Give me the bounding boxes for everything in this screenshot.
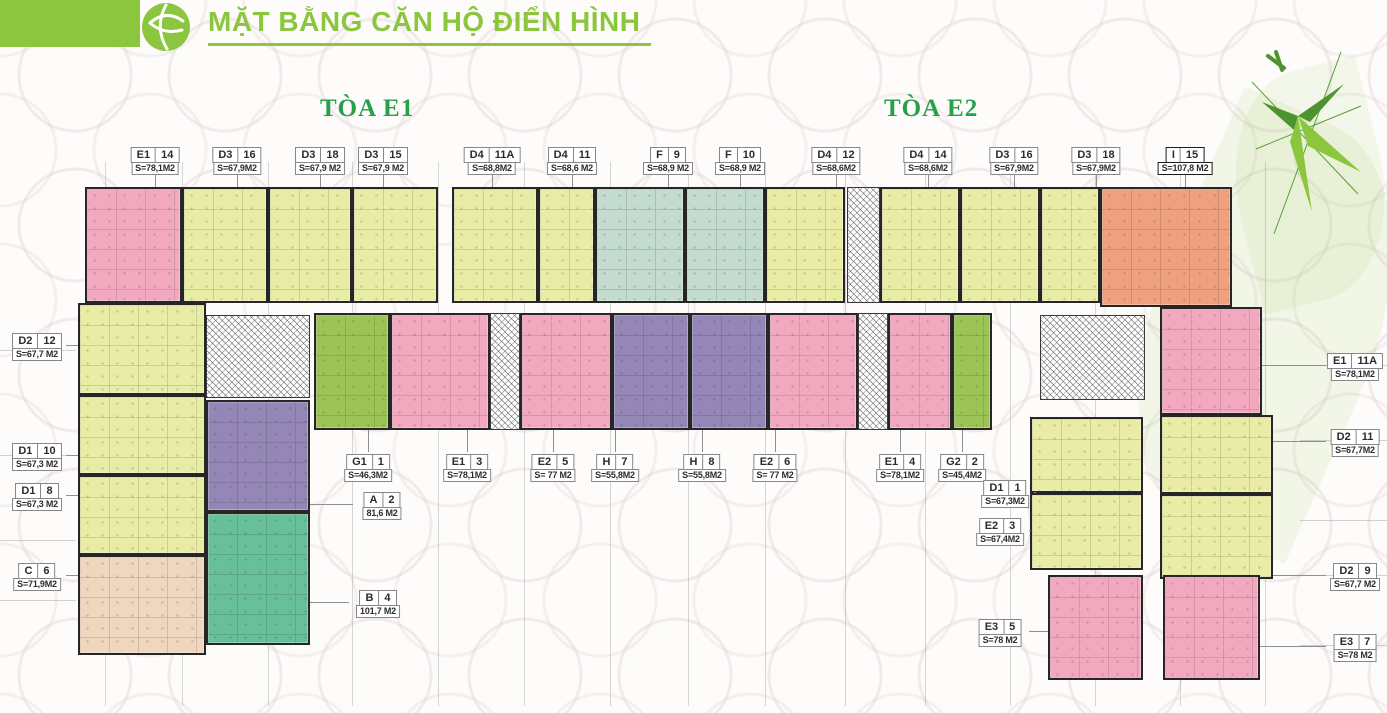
unit-number: 1 <box>1008 481 1025 495</box>
unit-code: E2 <box>533 455 556 469</box>
unit-label-B-4: B4101,7 M2 <box>356 588 400 618</box>
unit-code: I <box>1167 148 1180 162</box>
unit-block-D3-16 <box>182 187 268 303</box>
unit-code: E2 <box>755 455 778 469</box>
unit-code: D4 <box>812 148 836 162</box>
elevator-core-e1 <box>206 315 310 398</box>
unit-block-D2-9 <box>1160 494 1273 579</box>
unit-code: C <box>19 564 37 578</box>
leader-line <box>962 430 963 452</box>
unit-label-D3-16: D316S=67,9M2 <box>212 145 261 175</box>
leader-line <box>492 174 493 187</box>
leader-line <box>310 602 349 603</box>
unit-area: S=68,6M2 <box>904 162 952 175</box>
unit-code: D2 <box>1332 430 1356 444</box>
unit-block-E1-11A <box>1160 307 1262 415</box>
unit-block-D3-15 <box>352 187 438 303</box>
unit-block-E2-6 <box>768 313 858 430</box>
unit-label-D3-15: D315S=67,9 M2 <box>358 145 408 175</box>
unit-number: 6 <box>37 564 54 578</box>
unit-area: S=68,6M2 <box>812 162 860 175</box>
unit-area: S=71,9M2 <box>13 578 61 591</box>
leader-line <box>668 174 669 187</box>
unit-code: D1 <box>984 481 1008 495</box>
unit-area: S=78 M2 <box>1334 649 1377 662</box>
leader-line <box>740 174 741 187</box>
leader-line <box>775 430 776 452</box>
unit-label-C-6: C6S=71,9M2 <box>13 561 61 591</box>
unit-area: S=78,1M2 <box>1331 368 1379 381</box>
unit-code: D3 <box>213 148 237 162</box>
unit-label-E1-4: E14S=78,1M2 <box>876 452 924 482</box>
unit-code: D3 <box>296 148 320 162</box>
unit-area: S=107,8 M2 <box>1158 162 1213 175</box>
unit-block-C-6 <box>78 555 206 655</box>
leader-line <box>320 174 321 187</box>
unit-label-I-15: I15S=107,8 M2 <box>1158 145 1213 175</box>
unit-number: 3 <box>1003 519 1020 533</box>
unit-number: 12 <box>836 148 859 162</box>
leader-line <box>1029 631 1048 632</box>
unit-label-D1-1: D11S=67,3M2 <box>981 478 1029 508</box>
unit-area: S=45,4M2 <box>938 469 986 482</box>
unit-block-D1-1 <box>1030 417 1143 493</box>
unit-block-D4-11 <box>538 187 595 303</box>
leader-line <box>1260 646 1326 647</box>
unit-block-I-15 <box>1100 187 1232 307</box>
unit-area: S=68,9 M2 <box>643 162 693 175</box>
unit-area: S=67,4M2 <box>976 533 1024 546</box>
unit-area: S=68,9 M2 <box>715 162 765 175</box>
unit-number: 18 <box>1096 148 1119 162</box>
unit-number: 5 <box>556 455 573 469</box>
leader-line <box>1096 174 1097 187</box>
leader-line <box>1273 575 1326 576</box>
unit-block-G1-1 <box>314 313 390 430</box>
unit-label-D3-18: D318S=67,9 M2 <box>295 145 345 175</box>
unit-code: E2 <box>980 519 1003 533</box>
unit-code: A <box>364 493 382 507</box>
unit-block-E2-5 <box>520 313 612 430</box>
unit-label-F-10: F10S=68,9 M2 <box>715 145 765 175</box>
unit-number: 16 <box>1014 148 1037 162</box>
unit-block-D2-11 <box>1160 415 1273 494</box>
unit-number: 16 <box>237 148 260 162</box>
unit-label-D3-18: D318S=67,9M2 <box>1071 145 1120 175</box>
unit-code: D4 <box>549 148 573 162</box>
unit-area: S= 77 M2 <box>530 469 575 482</box>
unit-code: D1 <box>13 444 37 458</box>
unit-label-G2-2: G22S=45,4M2 <box>938 452 986 482</box>
grid-line <box>438 162 439 706</box>
unit-block-D3-18 <box>1040 187 1100 303</box>
unit-block-E1-4 <box>888 313 952 430</box>
leader-line <box>702 430 703 452</box>
unit-number: 10 <box>37 444 60 458</box>
unit-area: S=67,9M2 <box>1072 162 1120 175</box>
unit-code: E3 <box>980 620 1003 634</box>
unit-number: 12 <box>37 334 60 348</box>
corridor-hatch-left <box>490 313 520 430</box>
unit-number: 1 <box>372 455 389 469</box>
leader-line <box>928 174 929 187</box>
unit-code: D3 <box>359 148 383 162</box>
unit-block-B-4 <box>206 512 310 645</box>
unit-label-E2-3: E23S=67,4M2 <box>976 516 1024 546</box>
unit-label-D2-9: D29S=67,7 M2 <box>1330 561 1380 591</box>
leader-line <box>237 174 238 187</box>
leader-line <box>1262 365 1326 366</box>
unit-number: 14 <box>155 148 178 162</box>
unit-code: D4 <box>904 148 928 162</box>
unit-number: 2 <box>382 493 399 507</box>
unit-number: 11 <box>573 148 596 162</box>
unit-code: E1 <box>132 148 155 162</box>
unit-label-E3-5: E35S=78 M2 <box>979 617 1022 647</box>
elevator-core-e2 <box>1040 315 1145 400</box>
unit-label-H-7: H7S=55,8M2 <box>591 452 639 482</box>
unit-label-D4-14: D414S=68,6M2 <box>903 145 952 175</box>
leader-line <box>155 174 156 187</box>
unit-label-H-8: H8S=55,8M2 <box>678 452 726 482</box>
unit-number: 8 <box>702 455 719 469</box>
unit-code: H <box>684 455 702 469</box>
unit-area: S=67,3M2 <box>981 495 1029 508</box>
unit-code: E1 <box>880 455 903 469</box>
unit-label-E2-5: E25S= 77 M2 <box>530 452 575 482</box>
unit-label-D2-11: D211S=67,7M2 <box>1331 427 1380 457</box>
unit-block-D4-11A <box>452 187 538 303</box>
unit-number: 11A <box>489 148 520 162</box>
leader-line <box>66 345 78 346</box>
grid-line <box>0 600 76 601</box>
leader-line <box>836 174 837 187</box>
leader-line <box>1014 174 1015 187</box>
unit-area: S=67,7M2 <box>1331 444 1379 457</box>
leader-line <box>66 575 78 576</box>
unit-area: S=68,6 M2 <box>547 162 597 175</box>
leader-line <box>553 430 554 452</box>
unit-number: 11 <box>1356 430 1379 444</box>
leader-line <box>615 430 616 452</box>
tower-gap-hatch <box>847 187 880 303</box>
unit-area: S=78 M2 <box>979 634 1022 647</box>
leader-line <box>572 174 573 187</box>
unit-code: E1 <box>447 455 470 469</box>
unit-block-D1-8 <box>78 475 206 555</box>
corridor-hatch-right <box>858 313 888 430</box>
unit-area: S=78,1M2 <box>876 469 924 482</box>
unit-number: 14 <box>928 148 951 162</box>
unit-code: H <box>597 455 615 469</box>
unit-block-D4-12 <box>765 187 845 303</box>
unit-label-D1-8: D18S=67,3 M2 <box>12 481 62 511</box>
unit-area: 81,6 M2 <box>362 507 401 520</box>
unit-block-G2-2 <box>952 313 992 430</box>
unit-area: S=67,9M2 <box>990 162 1038 175</box>
unit-label-D4-11A: D411AS=68,8M2 <box>464 145 521 175</box>
unit-block-H-8 <box>690 313 768 430</box>
leader-line <box>467 430 468 452</box>
unit-block-D3-18 <box>268 187 352 303</box>
unit-number: 5 <box>1003 620 1020 634</box>
unit-code: E3 <box>1335 635 1358 649</box>
leader-line <box>900 430 901 452</box>
unit-number: 9 <box>1358 564 1375 578</box>
unit-area: S= 77 M2 <box>752 469 797 482</box>
unit-block-E1-3 <box>390 313 490 430</box>
leader-line <box>383 174 384 187</box>
grid-line <box>845 162 846 706</box>
unit-area: S=67,3 M2 <box>12 458 62 471</box>
unit-block-E1-14 <box>85 187 182 303</box>
unit-block-D3-16 <box>960 187 1040 303</box>
unit-label-E1-3: E13S=78,1M2 <box>443 452 491 482</box>
unit-block-E3-7 <box>1163 575 1260 680</box>
unit-block-F-9 <box>595 187 685 303</box>
leader-line <box>1029 530 1031 531</box>
unit-number: 18 <box>320 148 343 162</box>
unit-label-D4-11: D411S=68,6 M2 <box>547 145 597 175</box>
unit-area: S=78,1M2 <box>443 469 491 482</box>
leader-line <box>1185 174 1186 187</box>
unit-number: 9 <box>668 148 685 162</box>
unit-code: F <box>720 148 737 162</box>
unit-block-E2-3 <box>1030 493 1143 570</box>
unit-code: D3 <box>990 148 1014 162</box>
unit-code: D1 <box>16 484 40 498</box>
unit-label-D2-12: D212S=67,7 M2 <box>12 331 62 361</box>
leader-line <box>1273 441 1326 442</box>
unit-label-E2-6: E26S= 77 M2 <box>752 452 797 482</box>
unit-number: 2 <box>966 455 983 469</box>
unit-number: 10 <box>737 148 760 162</box>
unit-number: 6 <box>778 455 795 469</box>
unit-area: S=67,9 M2 <box>295 162 345 175</box>
unit-number: 4 <box>378 591 395 605</box>
unit-number: 7 <box>615 455 632 469</box>
unit-block-F-10 <box>685 187 765 303</box>
unit-label-E1-11A: E111AS=78,1M2 <box>1327 351 1383 381</box>
grid-line <box>0 540 76 541</box>
unit-label-D3-16: D316S=67,9M2 <box>989 145 1038 175</box>
unit-label-D4-12: D412S=68,6M2 <box>811 145 860 175</box>
floor-plan: E114S=78,1M2D316S=67,9M2D318S=67,9 M2D31… <box>0 0 1387 713</box>
unit-code: D4 <box>465 148 489 162</box>
unit-number: 3 <box>470 455 487 469</box>
unit-number: 15 <box>1180 148 1203 162</box>
unit-code: D3 <box>1072 148 1096 162</box>
unit-number: 8 <box>40 484 57 498</box>
unit-block-E3-5 <box>1048 575 1143 680</box>
unit-block-A-2 <box>206 400 310 512</box>
leader-line <box>66 455 78 456</box>
unit-block-D4-14 <box>880 187 960 303</box>
unit-label-E3-7: E37S=78 M2 <box>1334 632 1377 662</box>
unit-area: S=67,7 M2 <box>1330 578 1380 591</box>
unit-block-H-7 <box>612 313 690 430</box>
unit-block-D1-10 <box>78 395 206 475</box>
unit-code: D2 <box>13 334 37 348</box>
grid-line <box>1300 520 1387 521</box>
leader-line <box>368 430 369 452</box>
unit-area: S=67,3 M2 <box>12 498 62 511</box>
unit-code: D2 <box>1334 564 1358 578</box>
unit-area: S=68,8M2 <box>468 162 516 175</box>
unit-label-F-9: F9S=68,9 M2 <box>643 145 693 175</box>
unit-block-D2-12 <box>78 303 206 395</box>
unit-number: 11A <box>1351 354 1382 368</box>
unit-code: B <box>360 591 378 605</box>
unit-label-A-2: A281,6 M2 <box>362 490 401 520</box>
unit-area: S=78,1M2 <box>131 162 179 175</box>
leader-line <box>66 495 78 496</box>
unit-label-E1-14: E114S=78,1M2 <box>131 145 180 175</box>
floor-plan-page: MẶT BẰNG CĂN HỘ ĐIỂN HÌNH TÒA E1 TÒA E2 … <box>0 0 1387 713</box>
unit-code: G2 <box>941 455 966 469</box>
unit-area: S=67,9M2 <box>213 162 261 175</box>
unit-label-D1-10: D110S=67,3 M2 <box>12 441 62 471</box>
unit-area: S=46,3M2 <box>344 469 392 482</box>
unit-code: G1 <box>347 455 372 469</box>
unit-area: S=67,9 M2 <box>358 162 408 175</box>
unit-number: 15 <box>383 148 406 162</box>
unit-area: S=67,7 M2 <box>12 348 62 361</box>
unit-label-G1-1: G11S=46,3M2 <box>344 452 392 482</box>
unit-number: 4 <box>903 455 920 469</box>
unit-code: F <box>651 148 668 162</box>
unit-code: E1 <box>1328 354 1351 368</box>
unit-area: 101,7 M2 <box>356 605 400 618</box>
unit-area: S=55,8M2 <box>591 469 639 482</box>
leader-line <box>310 504 353 505</box>
unit-number: 7 <box>1358 635 1375 649</box>
unit-area: S=55,8M2 <box>678 469 726 482</box>
